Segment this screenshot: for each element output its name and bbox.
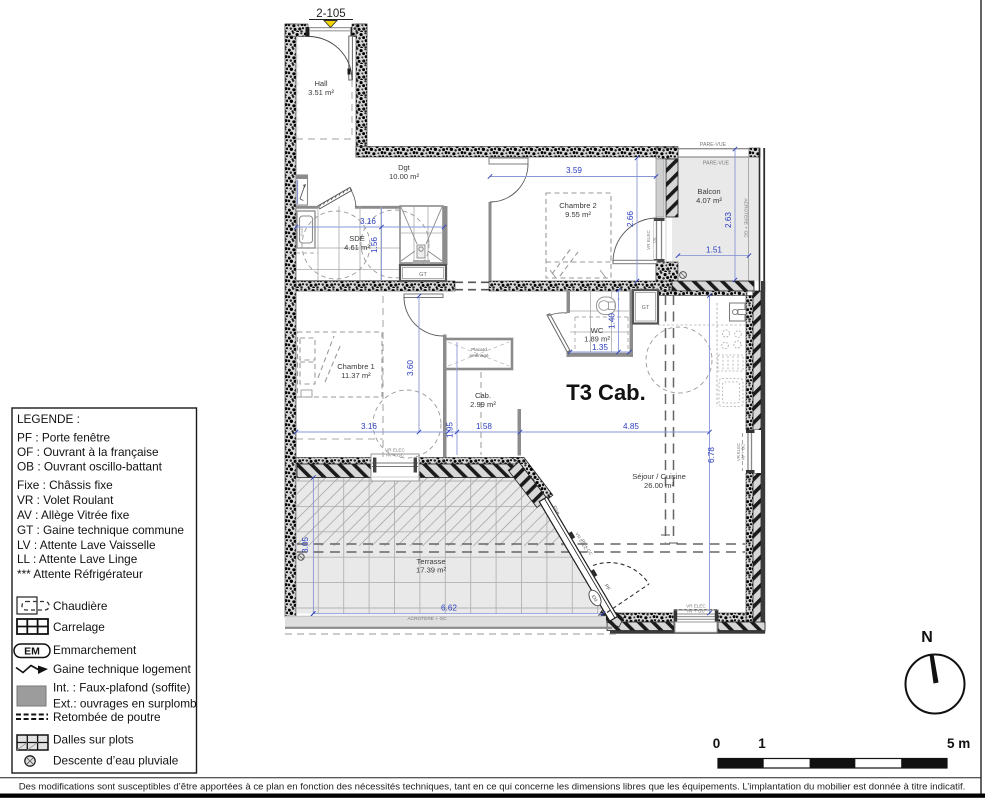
svg-text:VR ELEC: VR ELEC bbox=[646, 229, 651, 249]
svg-text:Chambre 1: Chambre 1 bbox=[337, 362, 375, 371]
svg-text:Hall: Hall bbox=[314, 79, 327, 88]
svg-text:GT: GT bbox=[642, 305, 650, 311]
svg-text:3.59: 3.59 bbox=[566, 166, 582, 175]
svg-text:0: 0 bbox=[713, 736, 721, 751]
svg-text:AV + GC: AV + GC bbox=[687, 608, 706, 613]
svg-text:2.66: 2.66 bbox=[626, 211, 635, 227]
svg-text:Cab.: Cab. bbox=[475, 391, 491, 400]
svg-text:1.51: 1.51 bbox=[706, 246, 722, 255]
svg-text:1.40: 1.40 bbox=[608, 313, 617, 329]
svg-text:ACROTERE + GC: ACROTERE + GC bbox=[407, 616, 447, 622]
svg-text:Des modifications sont suscept: Des modifications sont susceptibles d’êt… bbox=[19, 782, 966, 793]
svg-text:EM: EM bbox=[24, 646, 40, 658]
svg-text:2.63: 2.63 bbox=[724, 212, 733, 228]
svg-text:Carrelage: Carrelage bbox=[53, 620, 105, 634]
svg-text:3.51 m²: 3.51 m² bbox=[308, 88, 334, 97]
svg-text:Int. : Faux-plafond (soffite): Int. : Faux-plafond (soffite) bbox=[53, 681, 191, 695]
svg-text:GT : Gaine technique commune: GT : Gaine technique commune bbox=[17, 523, 184, 537]
svg-text:LL : Attente Lave Linge: LL : Attente Lave Linge bbox=[17, 552, 138, 566]
svg-text:4.61 m²: 4.61 m² bbox=[344, 243, 370, 252]
svg-text:LEGENDE :: LEGENDE : bbox=[17, 412, 80, 426]
svg-text:6.78: 6.78 bbox=[707, 447, 716, 463]
svg-text:1.58: 1.58 bbox=[476, 422, 492, 431]
svg-text:3.16: 3.16 bbox=[360, 217, 376, 226]
svg-text:3.05: 3.05 bbox=[301, 537, 310, 553]
svg-text:1.35: 1.35 bbox=[592, 343, 608, 352]
svg-text:3.60: 3.60 bbox=[406, 360, 415, 376]
svg-text:Descente d’eau pluviale: Descente d’eau pluviale bbox=[53, 754, 179, 768]
svg-text:Dgt: Dgt bbox=[398, 163, 411, 172]
svg-text:SDE: SDE bbox=[349, 234, 365, 243]
svg-text:9.55 m²: 9.55 m² bbox=[565, 210, 591, 219]
svg-text:4.07 m²: 4.07 m² bbox=[696, 196, 722, 205]
svg-text:PARE-VUE: PARE-VUE bbox=[703, 161, 730, 167]
svg-text:ACROTERE + GC: ACROTERE + GC bbox=[743, 198, 749, 238]
svg-text:AV + GC: AV + GC bbox=[741, 444, 746, 460]
svg-text:Chaudière: Chaudière bbox=[53, 599, 108, 613]
svg-text:17.39 m²: 17.39 m² bbox=[416, 566, 446, 575]
svg-text:11.37 m²: 11.37 m² bbox=[341, 371, 371, 380]
svg-text:Gaine technique logement: Gaine technique logement bbox=[53, 662, 191, 676]
svg-text:Placard: Placard bbox=[471, 347, 487, 352]
svg-text:GT: GT bbox=[419, 272, 427, 278]
svg-text:T3 Cab.: T3 Cab. bbox=[566, 380, 645, 405]
svg-text:aménagé: aménagé bbox=[469, 353, 489, 358]
svg-text:Emmarchement: Emmarchement bbox=[53, 643, 137, 657]
svg-text:OB : Ouvrant oscillo-battant: OB : Ouvrant oscillo-battant bbox=[17, 460, 163, 474]
svg-text:6.62: 6.62 bbox=[441, 604, 457, 613]
svg-text:5 m: 5 m bbox=[947, 736, 970, 751]
svg-text:PARE-VUE: PARE-VUE bbox=[700, 142, 727, 148]
svg-text:26.00 m²: 26.00 m² bbox=[644, 481, 674, 490]
svg-text:2-105: 2-105 bbox=[316, 8, 345, 20]
svg-text:AV : Allège Vitrée fixe: AV : Allège Vitrée fixe bbox=[17, 508, 130, 522]
svg-text:LV : Attente Lave Vaisselle: LV : Attente Lave Vaisselle bbox=[17, 538, 156, 552]
svg-text:60x45: 60x45 bbox=[300, 227, 304, 236]
svg-text:DE: DE bbox=[653, 237, 657, 243]
svg-text:*** Attente Réfrigérateur: *** Attente Réfrigérateur bbox=[17, 567, 143, 581]
svg-text:Retombée de poutre: Retombée de poutre bbox=[53, 710, 161, 724]
svg-text:VR : Volet Roulant: VR : Volet Roulant bbox=[17, 493, 114, 507]
svg-text:N: N bbox=[921, 629, 933, 646]
svg-text:OF : Ouvrant à la française: OF : Ouvrant à la française bbox=[17, 445, 159, 459]
svg-text:Ext.: ouvrages en surplomb: Ext.: ouvrages en surplomb bbox=[53, 697, 197, 711]
svg-text:3.16: 3.16 bbox=[361, 422, 377, 431]
svg-text:1.95: 1.95 bbox=[446, 422, 455, 438]
svg-text:4.85: 4.85 bbox=[623, 422, 639, 431]
svg-text:1: 1 bbox=[758, 736, 766, 751]
svg-text:2.99 m²: 2.99 m² bbox=[470, 400, 496, 409]
svg-text:Balcon: Balcon bbox=[697, 187, 720, 196]
svg-text:Dalles sur plots: Dalles sur plots bbox=[53, 733, 134, 747]
svg-text:10.00 m²: 10.00 m² bbox=[389, 172, 419, 181]
svg-text:Fixe : Châssis fixe: Fixe : Châssis fixe bbox=[17, 478, 113, 492]
svg-text:Séjour / Cuisine: Séjour / Cuisine bbox=[632, 472, 686, 481]
svg-text:Chambre 2: Chambre 2 bbox=[559, 201, 597, 210]
svg-text:1.56: 1.56 bbox=[370, 237, 379, 253]
svg-text:PF : Porte fenêtre: PF : Porte fenêtre bbox=[17, 431, 111, 445]
